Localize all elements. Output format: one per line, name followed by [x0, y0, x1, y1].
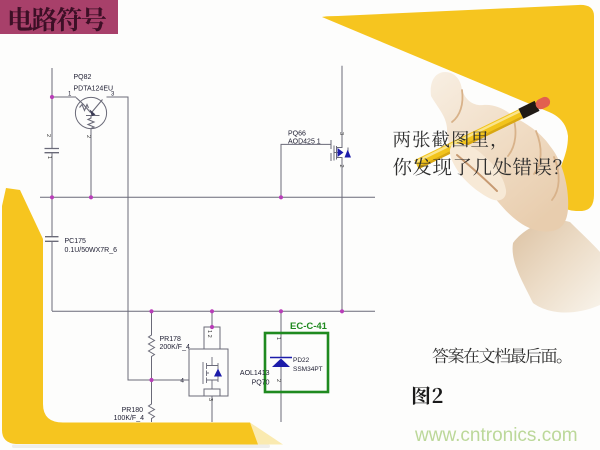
svg-text:4: 4 [180, 378, 184, 385]
svg-text:0.1U/50WX7R_6: 0.1U/50WX7R_6 [65, 247, 118, 254]
svg-text:PDTA124EU: PDTA124EU [74, 86, 114, 93]
svg-text:PR178: PR178 [160, 336, 182, 343]
svg-text:PR180: PR180 [122, 407, 144, 414]
svg-text:AOL1413: AOL1413 [240, 370, 270, 377]
svg-text:3: 3 [207, 398, 213, 401]
svg-text:PQ66: PQ66 [288, 131, 306, 138]
svg-text:AOD425 1: AOD425 1 [288, 139, 321, 146]
svg-text:1: 1 [46, 156, 52, 159]
svg-text:www.cntronics.com: www.cntronics.com [414, 425, 578, 446]
svg-text:PQ70: PQ70 [252, 380, 270, 387]
svg-text:2: 2 [85, 135, 91, 138]
svg-text:2: 2 [338, 165, 344, 168]
svg-text:PQ82: PQ82 [74, 74, 92, 81]
svg-text:100K/F_4: 100K/F_4 [114, 415, 144, 422]
svg-text:1 2: 1 2 [206, 330, 212, 338]
svg-text:3: 3 [338, 132, 344, 135]
svg-text:EC-C-41: EC-C-41 [290, 321, 328, 332]
svg-text:2: 2 [45, 134, 51, 137]
svg-text:2: 2 [275, 379, 281, 382]
svg-text:1: 1 [275, 337, 281, 340]
svg-text:SSM34PT: SSM34PT [293, 366, 323, 373]
svg-text:PD22: PD22 [293, 357, 310, 364]
svg-text:PC175: PC175 [65, 238, 87, 245]
svg-text:200K/F_4: 200K/F_4 [160, 344, 190, 351]
